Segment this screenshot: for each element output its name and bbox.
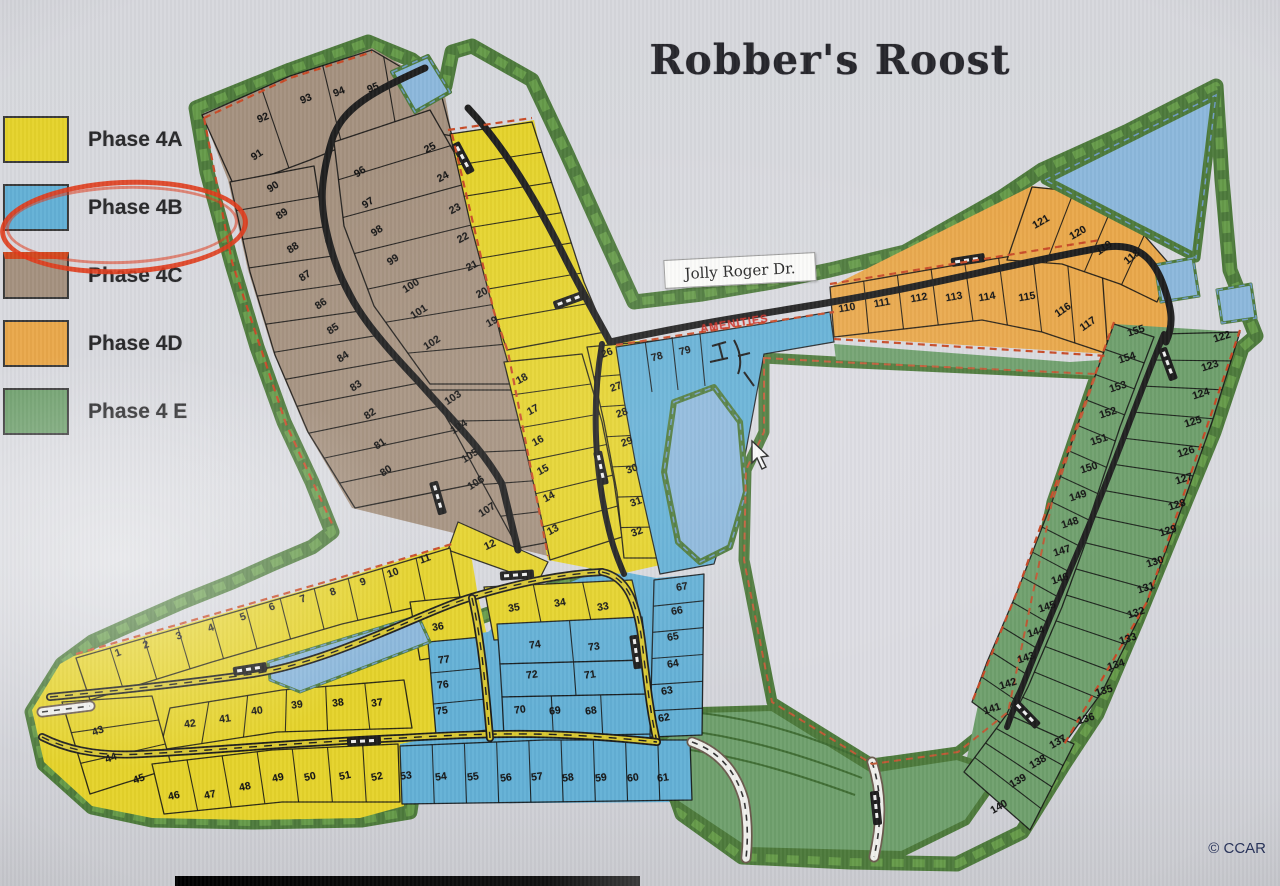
legend-label: Phase 4A <box>88 128 183 152</box>
legend-swatch <box>3 320 69 367</box>
street-sign <box>347 736 381 747</box>
plat-map-photo: Robber's Roost Phase 4APhase 4BPhase 4CP… <box>0 0 1280 886</box>
legend-item: Phase 4D <box>3 320 183 367</box>
photo-black-bar <box>175 876 640 886</box>
ccar-watermark: © CCAR <box>1208 840 1266 857</box>
legend-label: Phase 4 E <box>88 400 187 424</box>
legend-item: Phase 4 E <box>3 388 187 435</box>
lot-strip <box>400 740 692 804</box>
street-name-text: Jolly Roger Dr. <box>684 259 796 283</box>
map-title: Robber's Roost <box>560 36 1100 84</box>
legend-swatch <box>3 116 69 163</box>
pond <box>1217 284 1256 323</box>
lot-strip <box>497 617 647 664</box>
legend-item: Phase 4A <box>3 116 183 163</box>
legend-label: Phase 4D <box>88 332 183 356</box>
legend-swatch <box>3 388 69 435</box>
